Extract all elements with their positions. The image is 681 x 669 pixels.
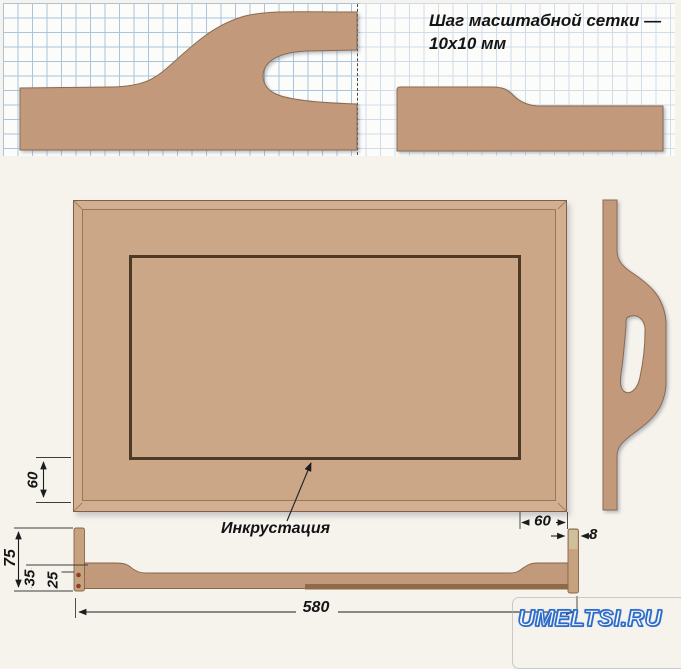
dim-inlay-offset-bottom: 60 [25, 472, 42, 489]
watermark-logo: UMELTSI.RU [518, 605, 662, 632]
dim-tray-length: 580 [303, 599, 330, 617]
dim-inlay-offset-right: 60 [534, 513, 551, 530]
tray-blueprint-page: { "note": { "line1": "Шаг масштабной сет… [0, 0, 681, 646]
dim-rail-mid-height: 25 [45, 571, 62, 590]
dimension-overlay [0, 0, 681, 646]
dim-rail-end-height: 35 [22, 569, 39, 588]
inlay-leader-line [287, 463, 311, 521]
dim-end-panel-height: 75 [2, 549, 20, 567]
bevel-mitre-lines [74, 201, 566, 511]
dim-end-panel-thickness: 8 [589, 526, 597, 543]
inlay-label: Инкрустация [221, 520, 330, 538]
